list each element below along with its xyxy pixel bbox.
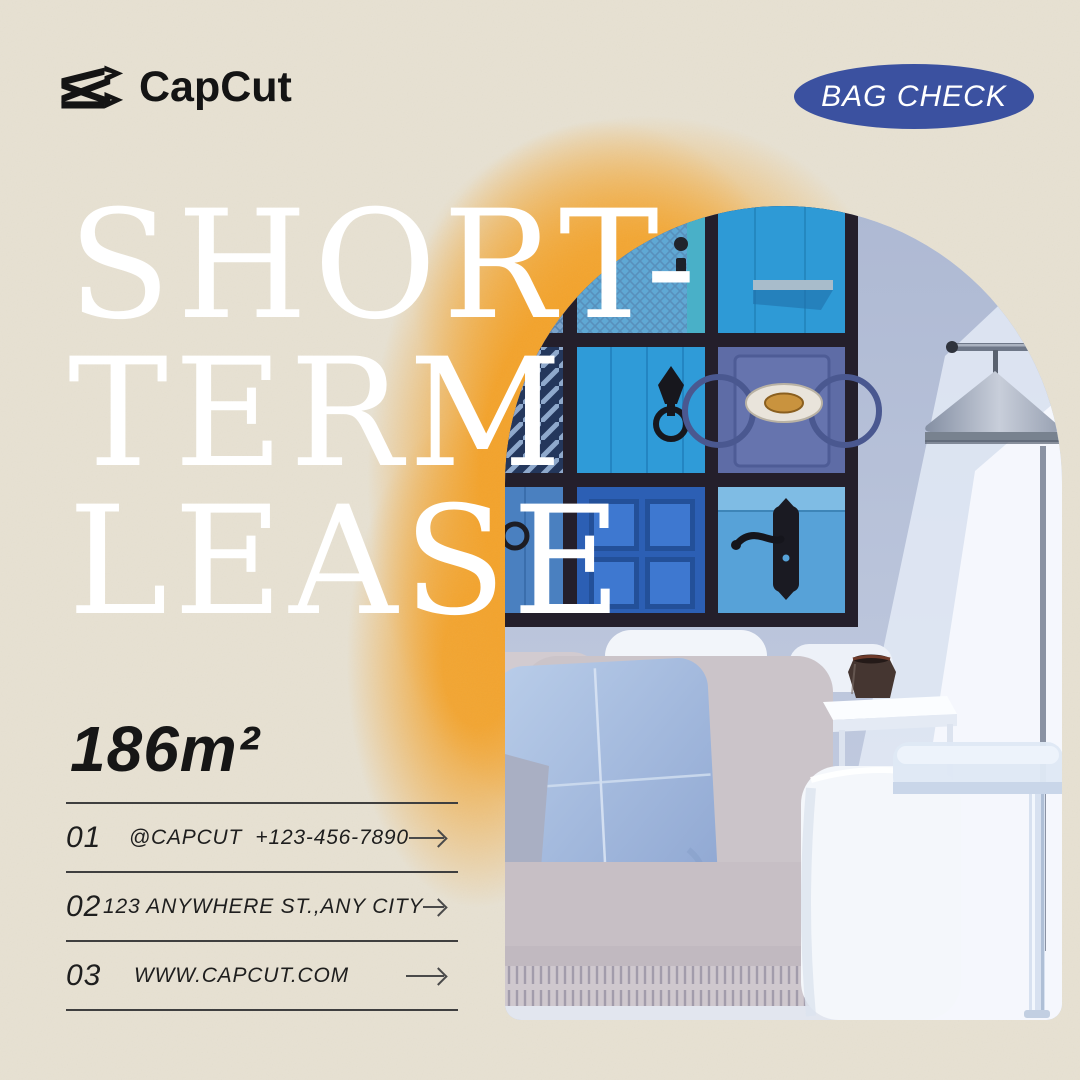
bag-check-badge: BAG CHECK [794,64,1034,129]
poster-canvas: CapCut BAG CHECK SHORT- TERM LEASE 186m²… [0,0,1080,1080]
row-label: @CAPCUT +123-456-7890 [129,826,409,850]
badge-label: BAG CHECK [821,80,1007,114]
headline-line-2: TERM [68,340,702,488]
contact-row-address: 02 123 ANYWHERE ST.,ANY CITY [66,873,458,942]
row-number: 03 [66,959,134,993]
arrow-right-icon [423,906,444,908]
brand-name: CapCut [139,63,292,112]
row-label: 123 ANYWHERE ST.,ANY CITY [103,895,423,919]
contact-row-handle-phone: 01 @CAPCUT +123-456-7890 [66,804,458,873]
capcut-logo-icon [60,62,126,112]
row-label: WWW.CAPCUT.COM [134,964,349,988]
arrow-right-icon [409,837,444,839]
row-number: 01 [66,821,129,855]
row-number: 02 [66,890,103,924]
capcut-logo: CapCut [60,62,292,112]
contact-list: 01 @CAPCUT +123-456-7890 02 123 ANYWHERE… [66,802,458,1011]
headline-line-3: LEASE [68,488,702,636]
sofa-arm [801,766,961,1020]
arrow-right-icon [406,975,444,977]
contact-row-website: 03 WWW.CAPCUT.COM [66,942,458,1011]
area-label: 186m² [70,712,260,786]
headline-line-1: SHORT- [68,192,702,340]
headline: SHORT- TERM LEASE [68,192,702,636]
